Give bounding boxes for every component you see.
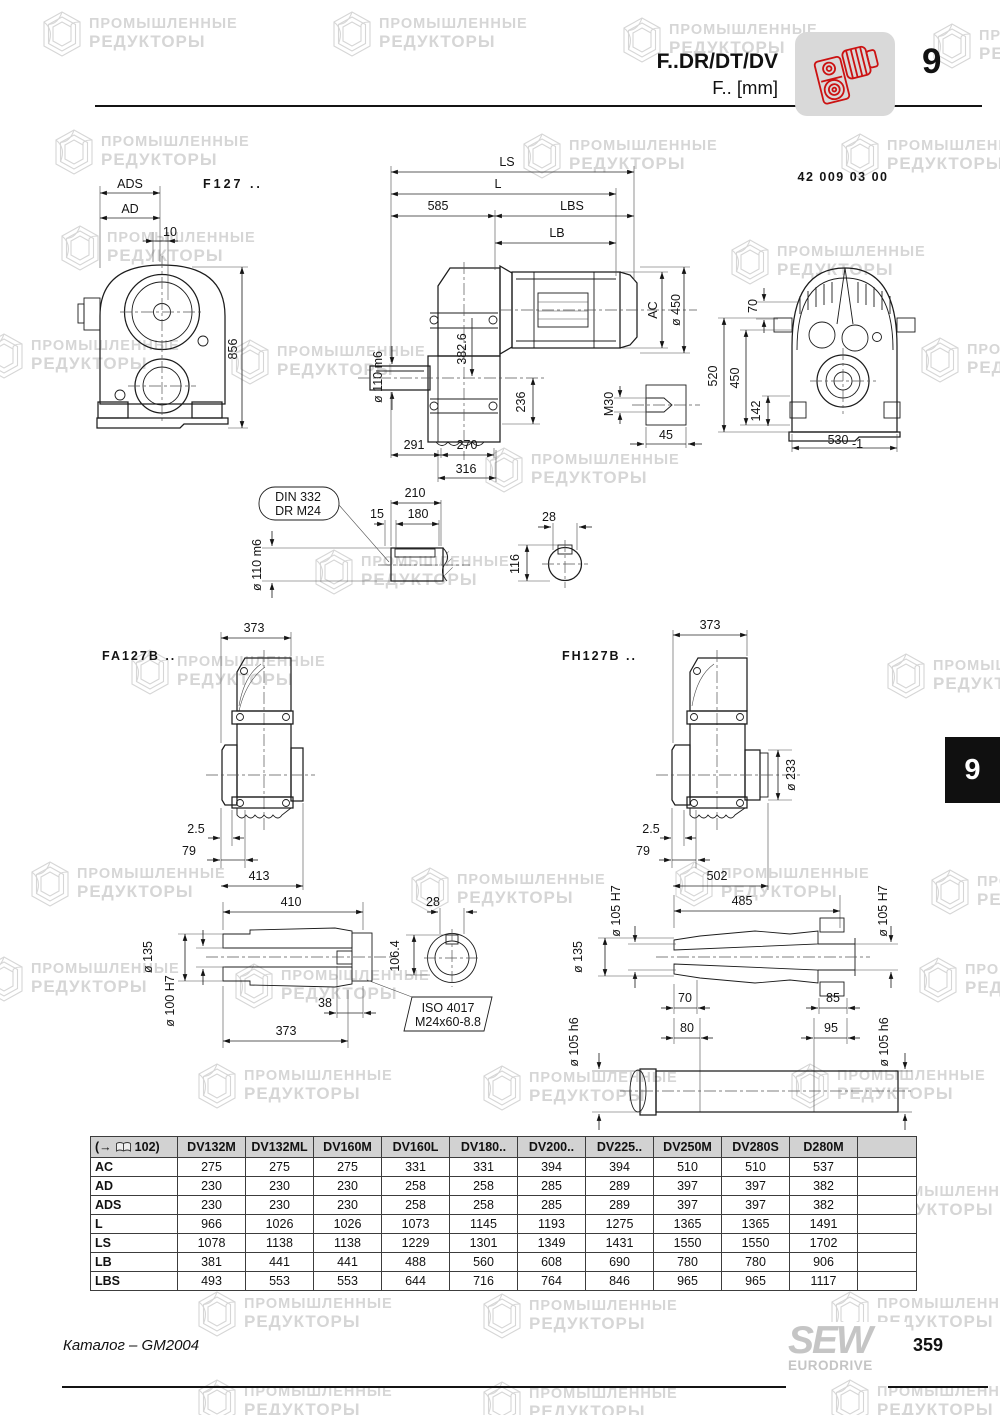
dim-ads: ADS xyxy=(117,177,143,191)
dim-fh-dia105h7-left: ø 105 H7 xyxy=(609,885,623,936)
dim-210: 210 xyxy=(405,486,426,500)
dim-fh-502: 502 xyxy=(707,869,728,883)
dimension-value: 1550 xyxy=(654,1234,722,1253)
table-row-lbs: LBS4935535536447167648469659651117 xyxy=(91,1272,917,1291)
column-header-dv160m: DV160M xyxy=(314,1137,382,1158)
dim-fh-373: 373 xyxy=(700,618,721,632)
dimension-value: 1550 xyxy=(722,1234,790,1253)
sew-logo-subtitle: EURODRIVE xyxy=(788,1358,904,1373)
dimension-value: 289 xyxy=(586,1196,654,1215)
dim-530: 530 xyxy=(828,433,849,447)
table-header-row: (→102)DV132MDV132MLDV160MDV160LDV180..DV… xyxy=(91,1137,917,1158)
dimension-value: 1145 xyxy=(450,1215,518,1234)
dim-fa-373b: 373 xyxy=(276,1024,297,1038)
column-header-d280m: D280M xyxy=(790,1137,858,1158)
dimension-value: 1026 xyxy=(246,1215,314,1234)
dim-m30: M30 xyxy=(602,392,616,416)
f127-part-number: 42 009 03 00 xyxy=(798,170,889,184)
watermark-text: ПРОМЫШЛЕННЫЕРЕДУКТОРЫ xyxy=(244,1297,393,1330)
catalog-page: ПРОМЫШЛЕННЫЕРЕДУКТОРЫПРОМЫШЛЕННЫЕРЕДУКТО… xyxy=(0,0,1000,1415)
row-label: LS xyxy=(91,1234,178,1253)
watermark-text: ПРОМЫШЛЕННЫЕРЕДУКТОРЫ xyxy=(529,1387,678,1415)
watermark: ПРОМЫШЛЕННЫЕРЕДУКТОРЫ xyxy=(480,1292,678,1340)
dimension-value: 230 xyxy=(178,1177,246,1196)
dimension-value: 716 xyxy=(450,1272,518,1291)
ref-prefix: (→ xyxy=(95,1140,112,1154)
column-header-empty xyxy=(858,1137,917,1158)
fh127b-title: FH127B .. xyxy=(562,649,637,663)
dim-142: 142 xyxy=(749,401,763,422)
dimension-value: 1026 xyxy=(314,1215,382,1234)
dimension-value: 1431 xyxy=(586,1234,654,1253)
callout-drm24: DR M24 xyxy=(275,504,321,518)
fa127b-title: FA127B .. xyxy=(102,649,176,663)
dimension-value: 397 xyxy=(722,1177,790,1196)
dimension-value: 537 xyxy=(790,1158,858,1177)
f127-end-view: 70 520 450 142 530 -1 xyxy=(706,268,915,452)
sew-logo-word: SEW xyxy=(788,1324,904,1357)
dim-316: 316 xyxy=(456,462,477,476)
dimension-value: 1193 xyxy=(518,1215,586,1234)
watermark: ПРОМЫШЛЕННЫЕРЕДУКТОРЫ xyxy=(195,1290,393,1338)
dimension-value: 1702 xyxy=(790,1234,858,1253)
hexagon-watermark-icon xyxy=(828,1378,872,1415)
table-row-ad: AD230230230258258285289397397382 xyxy=(91,1177,917,1196)
row-label: AD xyxy=(91,1177,178,1196)
dimension-value: 331 xyxy=(450,1158,518,1177)
column-header-dv225: DV225.. xyxy=(586,1137,654,1158)
fh127b-hollow-shaft: 485 ø 105 H7 ø 105 H7 ø 135 xyxy=(567,885,912,1130)
chapter-side-tab: 9 xyxy=(945,737,1000,803)
ref-page: 102) xyxy=(135,1140,160,1154)
table-ref-cell: (→102) xyxy=(91,1137,178,1158)
table-row-ads: ADS230230230258258285289397397382 xyxy=(91,1196,917,1215)
f127-side-view: LS L 585 LBS LB AC ø 450 382.6 236 xyxy=(358,155,702,482)
table-row-ac: AC275275275331331394394510510537 xyxy=(91,1158,917,1177)
dim-ac: AC xyxy=(646,301,660,318)
dim-856: 856 xyxy=(226,339,240,360)
row-label: L xyxy=(91,1215,178,1234)
dim-fa-dia100: ø 100 H7 xyxy=(163,975,177,1026)
empty-cell xyxy=(858,1196,917,1215)
empty-cell xyxy=(858,1177,917,1196)
column-header-dv280s: DV280S xyxy=(722,1137,790,1158)
dim-fa-410: 410 xyxy=(281,895,302,909)
dimension-value: 230 xyxy=(246,1196,314,1215)
table-row-ls: LS10781138113812291301134914311550155017… xyxy=(91,1234,917,1253)
dim-450: 450 xyxy=(728,368,742,389)
dim-fa-2_5: 2.5 xyxy=(187,822,204,836)
callout-m24: M24x60-8.8 xyxy=(415,1015,481,1029)
dimension-value: 553 xyxy=(246,1272,314,1291)
page-number: 359 xyxy=(913,1335,943,1356)
dimension-value: 289 xyxy=(586,1177,654,1196)
gearmotor-icon-box xyxy=(795,32,895,116)
dimension-value: 560 xyxy=(450,1253,518,1272)
sew-eurodrive-logo: SEW EURODRIVE xyxy=(786,1322,906,1373)
row-label: LB xyxy=(91,1253,178,1272)
dim-236: 236 xyxy=(514,392,528,413)
dimension-value: 553 xyxy=(314,1272,382,1291)
callout-din332: DIN 332 xyxy=(275,490,321,504)
dim-fa-79: 79 xyxy=(182,844,196,858)
dimension-value: 510 xyxy=(722,1158,790,1177)
dimension-value: 397 xyxy=(654,1177,722,1196)
watermark-text: ПРОМЫШЛЕННЫЕРЕДУКТОРЫ xyxy=(529,1299,678,1332)
dim-fh-2_5: 2.5 xyxy=(642,822,659,836)
dim-lb: LB xyxy=(549,226,564,240)
empty-cell xyxy=(858,1234,917,1253)
dimension-value: 1138 xyxy=(246,1234,314,1253)
column-header-dv250m: DV250M xyxy=(654,1137,722,1158)
dim-ls: LS xyxy=(499,155,514,169)
dimension-value: 397 xyxy=(654,1196,722,1215)
dim-fh-79: 79 xyxy=(636,844,650,858)
dim-fh-485: 485 xyxy=(732,894,753,908)
dimension-value: 1138 xyxy=(314,1234,382,1253)
empty-cell xyxy=(858,1272,917,1291)
dim-fa-413: 413 xyxy=(249,869,270,883)
column-header-dv132ml: DV132ML xyxy=(246,1137,314,1158)
row-label: ADS xyxy=(91,1196,178,1215)
dim-180: 180 xyxy=(408,507,429,521)
dim-fa-dia135: ø 135 xyxy=(141,941,155,973)
dimension-value: 1275 xyxy=(586,1215,654,1234)
hexagon-watermark-icon xyxy=(195,1378,239,1415)
dimension-table: (→102)DV132MDV132MLDV160MDV160LDV180..DV… xyxy=(90,1136,917,1291)
dimension-value: 275 xyxy=(246,1158,314,1177)
dimension-value: 644 xyxy=(382,1272,450,1291)
dim-fh-dia105h7-right: ø 105 H7 xyxy=(876,885,890,936)
dim-270: 270 xyxy=(457,438,478,452)
empty-cell xyxy=(858,1215,917,1234)
column-header-dv160l: DV160L xyxy=(382,1137,450,1158)
dimension-value: 331 xyxy=(382,1158,450,1177)
dimension-value: 846 xyxy=(586,1272,654,1291)
dimension-value: 1073 xyxy=(382,1215,450,1234)
dimension-value: 230 xyxy=(178,1196,246,1215)
dimension-value: 488 xyxy=(382,1253,450,1272)
dim-585: 585 xyxy=(428,199,449,213)
dimension-table-body: AC275275275331331394394510510537AD230230… xyxy=(91,1158,917,1291)
dimension-value: 1078 xyxy=(178,1234,246,1253)
dimension-value: 764 xyxy=(518,1272,586,1291)
dim-fa-373: 373 xyxy=(244,621,265,635)
f127-title: F127 .. xyxy=(203,177,263,191)
dimension-value: 441 xyxy=(246,1253,314,1272)
page-header: F..DR/DT/DV F.. [mm] xyxy=(657,50,778,99)
dimension-value: 1117 xyxy=(790,1272,858,1291)
dimension-value: 608 xyxy=(518,1253,586,1272)
dim-fh-dia135: ø 135 xyxy=(571,941,585,973)
dim-15: 15 xyxy=(370,507,384,521)
dimension-value: 258 xyxy=(382,1177,450,1196)
dim-fh-dia105h6-left: ø 105 h6 xyxy=(567,1017,581,1066)
catalog-edition: Каталог – GM2004 xyxy=(63,1337,199,1354)
dimension-value: 493 xyxy=(178,1272,246,1291)
fa127b-hollow-shaft: 410 ø 135 ø 100 H7 38 373 xyxy=(141,895,492,1048)
dimension-value: 382 xyxy=(790,1196,858,1215)
dim-291: 291 xyxy=(404,438,425,452)
dim-382: 382.6 xyxy=(455,333,469,364)
dimension-value: 780 xyxy=(654,1253,722,1272)
dimension-value: 258 xyxy=(382,1196,450,1215)
chapter-number: 9 xyxy=(922,42,941,82)
dim-116: 116 xyxy=(508,554,522,574)
dimension-value: 394 xyxy=(586,1158,654,1177)
dim-ad: AD xyxy=(121,202,138,216)
f127-shaft-detail: DIN 332 DR M24 210 15 180 ø 110 m6 xyxy=(250,486,592,598)
dimension-value: 965 xyxy=(654,1272,722,1291)
dim-530-tol: -1 xyxy=(852,437,863,451)
watermark-text: ПРОМЫШЛЕННЫЕРЕДУКТОРЫ xyxy=(877,1385,1000,1415)
dim-fa-28: 28 xyxy=(426,895,440,909)
dim-45: 45 xyxy=(659,428,673,442)
dimension-value: 275 xyxy=(314,1158,382,1177)
dim-fh-70: 70 xyxy=(678,991,692,1005)
dimension-value: 1229 xyxy=(382,1234,450,1253)
column-header-dv180: DV180.. xyxy=(450,1137,518,1158)
table-row-l: L966102610261073114511931275136513651491 xyxy=(91,1215,917,1234)
dimension-value: 966 xyxy=(178,1215,246,1234)
dimension-value: 441 xyxy=(314,1253,382,1272)
dimension-value: 1365 xyxy=(654,1215,722,1234)
dim-28: 28 xyxy=(542,510,556,524)
fh127b-view: 373 ø 233 2.5 79 502 xyxy=(636,618,800,890)
column-header-dv200: DV200.. xyxy=(518,1137,586,1158)
dimension-value: 382 xyxy=(790,1177,858,1196)
footer-rule-right xyxy=(888,1386,988,1388)
dimension-value: 258 xyxy=(450,1196,518,1215)
technical-drawings: F127 .. 42 009 03 00 xyxy=(0,0,1000,1135)
dim-dia450: ø 450 xyxy=(669,294,683,326)
dim-dia110-detail: ø 110 m6 xyxy=(250,539,264,591)
side-tab-number: 9 xyxy=(964,754,980,787)
dimension-value: 230 xyxy=(314,1177,382,1196)
row-label: AC xyxy=(91,1158,178,1177)
dimension-value: 1491 xyxy=(790,1215,858,1234)
dimension-value: 258 xyxy=(450,1177,518,1196)
dim-520: 520 xyxy=(706,366,720,387)
dimension-value: 1301 xyxy=(450,1234,518,1253)
dimension-value: 780 xyxy=(722,1253,790,1272)
dimension-value: 1349 xyxy=(518,1234,586,1253)
dim-l: L xyxy=(495,177,502,191)
dim-lbs: LBS xyxy=(560,199,584,213)
unit-subtitle: F.. [mm] xyxy=(657,77,778,99)
dim-fh-95: 95 xyxy=(824,1021,838,1035)
column-header-dv132m: DV132M xyxy=(178,1137,246,1158)
dim-10: 10 xyxy=(163,225,177,239)
watermark: ПРОМЫШЛЕННЫЕРЕДУКТОРЫ xyxy=(828,1378,1000,1415)
dimension-value: 397 xyxy=(722,1196,790,1215)
series-title: F..DR/DT/DV xyxy=(657,50,778,74)
watermark-text: ПРОМЫШЛЕННЫЕРЕДУКТОРЫ xyxy=(244,1385,393,1415)
dim-fa-106: 106.4 xyxy=(388,940,402,971)
hexagon-watermark-icon xyxy=(480,1292,524,1340)
book-icon xyxy=(115,1141,132,1153)
dimension-value: 394 xyxy=(518,1158,586,1177)
dim-fh-85: 85 xyxy=(826,991,840,1005)
dim-fa-38: 38 xyxy=(318,996,332,1010)
footer-rule-left xyxy=(62,1386,786,1388)
dim-fh-dia105h6-right: ø 105 h6 xyxy=(877,1017,891,1066)
dimension-value: 1365 xyxy=(722,1215,790,1234)
row-label: LBS xyxy=(91,1272,178,1291)
dimension-value: 275 xyxy=(178,1158,246,1177)
dim-dia110-side: ø 110 m6 xyxy=(371,351,385,403)
dimension-value: 510 xyxy=(654,1158,722,1177)
dimension-value: 230 xyxy=(246,1177,314,1196)
dimension-table-head: (→102)DV132MDV132MLDV160MDV160LDV180..DV… xyxy=(91,1137,917,1158)
gearmotor-icon xyxy=(806,38,884,110)
hexagon-watermark-icon xyxy=(195,1290,239,1338)
dimension-value: 690 xyxy=(586,1253,654,1272)
watermark: ПРОМЫШЛЕННЫЕРЕДУКТОРЫ xyxy=(195,1378,393,1415)
dim-70: 70 xyxy=(746,299,760,313)
table-row-lb: LB381441441488560608690780780906 xyxy=(91,1253,917,1272)
fa127b-view: 373 2.5 79 413 xyxy=(182,621,315,890)
dimension-value: 285 xyxy=(518,1177,586,1196)
callout-iso4017: ISO 4017 xyxy=(422,1001,475,1015)
dimension-value: 230 xyxy=(314,1196,382,1215)
dimension-value: 965 xyxy=(722,1272,790,1291)
dim-fh-80: 80 xyxy=(680,1021,694,1035)
dimension-value: 381 xyxy=(178,1253,246,1272)
empty-cell xyxy=(858,1253,917,1272)
f127-front-view: ADS AD 10 856 xyxy=(78,177,248,428)
dimension-value: 906 xyxy=(790,1253,858,1272)
dimension-value: 285 xyxy=(518,1196,586,1215)
dim-fh-dia233: ø 233 xyxy=(784,759,798,791)
empty-cell xyxy=(858,1158,917,1177)
